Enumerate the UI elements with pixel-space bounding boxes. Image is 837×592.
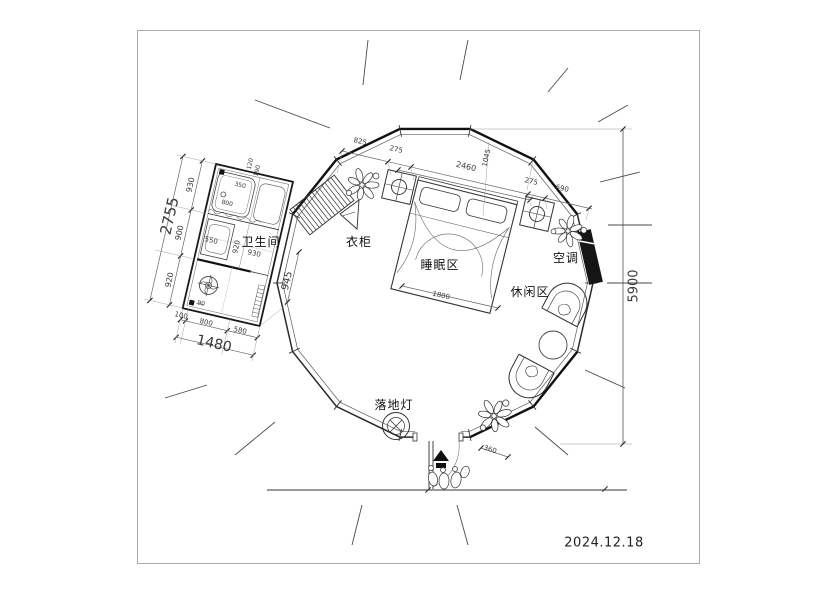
plant-south xyxy=(473,394,516,436)
label-leisure-area: 休闲区 xyxy=(510,286,549,298)
wall-bold-north xyxy=(293,129,578,215)
drawing-date: 2024.12.18 xyxy=(564,537,643,550)
floorplan-drawing xyxy=(0,0,837,592)
wall-inner-line xyxy=(283,134,588,431)
cushion-sketch xyxy=(556,302,572,318)
pillow-right xyxy=(465,198,508,224)
floorplan-sheet: 卫生间 衣柜 睡眠区 休闲区 空调 落地灯 5900 2755 1480 930… xyxy=(0,0,837,592)
door-post-right xyxy=(459,433,463,441)
nightstand-left xyxy=(382,170,417,205)
pillow-left xyxy=(418,186,461,212)
nightstand-right xyxy=(520,197,555,232)
entry-arrow-icon xyxy=(433,450,449,461)
label-bathroom: 卫生间 xyxy=(241,236,280,248)
side-table xyxy=(539,331,567,359)
armchair-top xyxy=(542,276,594,327)
plant-northwest xyxy=(346,168,379,201)
label-ac: 空调 xyxy=(553,252,579,264)
bed xyxy=(391,177,518,314)
label-wardrobe: 衣柜 xyxy=(346,236,372,248)
entry-figures xyxy=(427,465,471,489)
duvet-drape-lines xyxy=(395,201,512,298)
dim-overall-height: 5900 xyxy=(628,269,641,302)
label-sleeping-area: 睡眠区 xyxy=(420,259,459,271)
door-opening xyxy=(415,429,461,444)
cushion-sketch xyxy=(524,363,540,379)
label-floor-lamp: 落地灯 xyxy=(374,399,413,411)
armchair-bottom xyxy=(502,354,554,405)
door-post-left xyxy=(413,433,417,441)
entrance xyxy=(413,429,471,489)
